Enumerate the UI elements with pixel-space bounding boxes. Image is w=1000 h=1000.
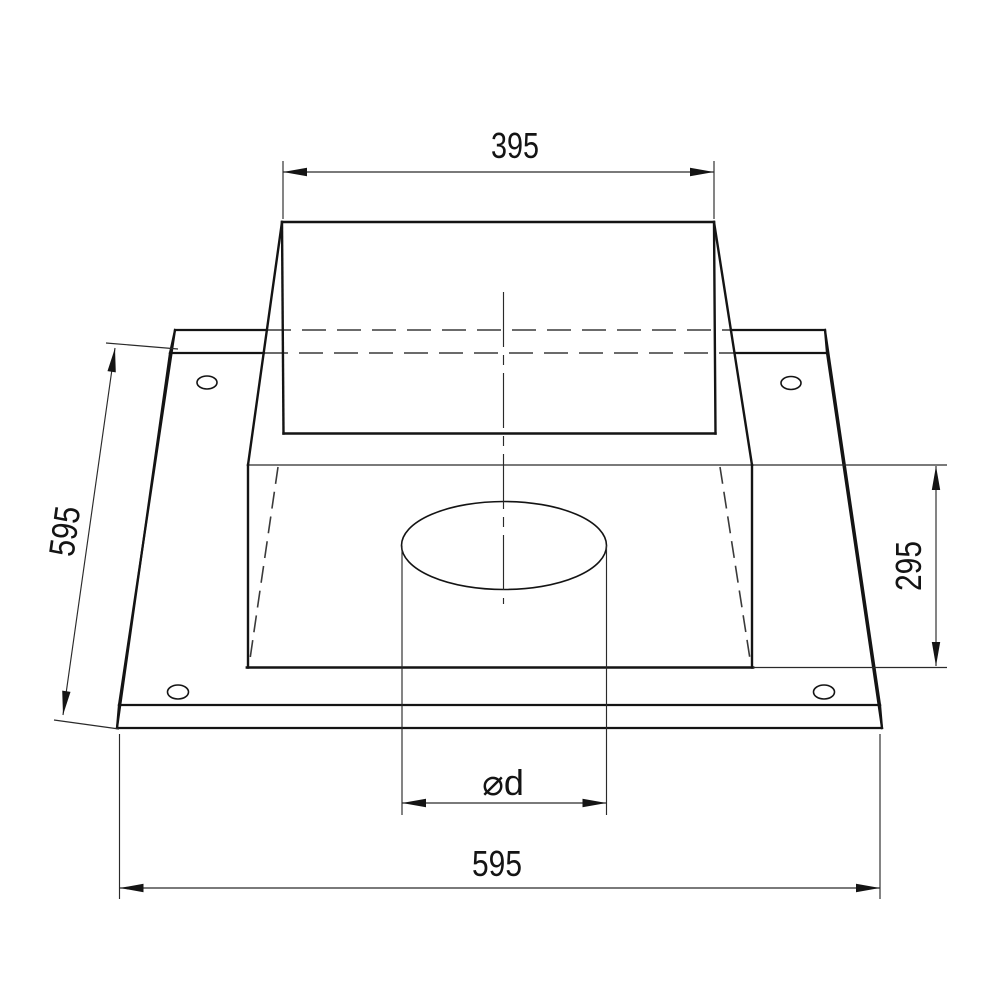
dimension-label-plate-depth: 595 (41, 503, 89, 558)
collar-outer-right-edge (714, 222, 752, 465)
collar-opening-left-edge (282, 222, 284, 434)
plate-right-top-edge (825, 330, 880, 705)
technical-drawing: 395 595 295 ⌀d 595 (0, 0, 1000, 1000)
dimension-label-plate-width: 595 (472, 843, 522, 884)
corner-hole-front-right (814, 685, 835, 699)
corner-hole-front-left (168, 685, 189, 699)
drawing-canvas: 395 595 295 ⌀d 595 (0, 0, 1000, 1000)
corner-hole-back-left (197, 376, 217, 389)
dimension-label-collar-depth: 295 (888, 541, 929, 591)
collar-outer-left-edge (248, 222, 282, 465)
collar-hidden-inner-left-edge (250, 467, 278, 659)
dimension-label-hole-diameter: ⌀d (482, 762, 524, 803)
plate-front-right-corner (880, 705, 882, 728)
extension-line (106, 343, 178, 349)
dimension-label-collar-width: 395 (491, 125, 539, 166)
corner-hole-back-right (781, 377, 801, 390)
collar-opening-right-edge (714, 222, 716, 434)
plate-left-bottom-edge (117, 353, 170, 728)
extension-line (54, 720, 119, 729)
plate-front-left-corner (117, 705, 119, 728)
dimension-plate-depth: 595 (41, 343, 178, 729)
dimension-hole-diameter: ⌀d (402, 762, 607, 803)
collar-hidden-inner-right-edge (720, 467, 750, 659)
plate-right-bottom-edge (827, 353, 882, 728)
dimension-plate-width: 595 (120, 734, 881, 899)
dimension-collar-width: 395 (283, 125, 714, 219)
